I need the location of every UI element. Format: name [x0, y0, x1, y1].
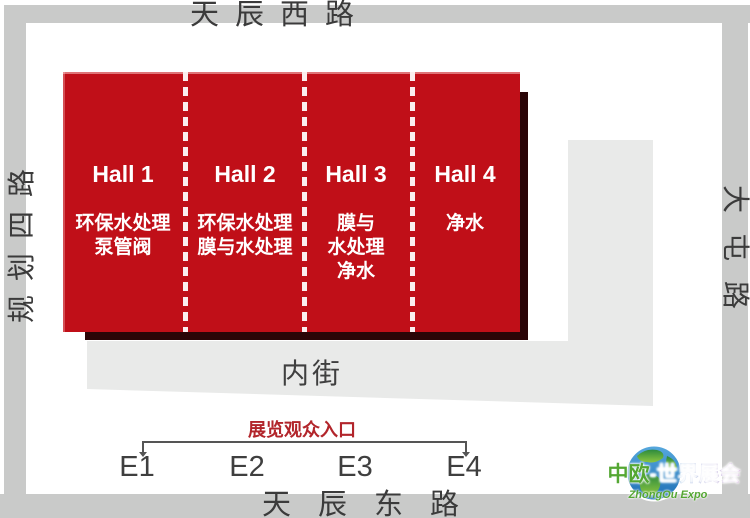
- hall-1-category-1: 环保水处理: [63, 212, 183, 236]
- gate-e3: E3: [337, 450, 372, 484]
- entrance-label: 展览观众入口: [240, 416, 364, 442]
- hall-3-category-2: 水处理: [302, 236, 410, 260]
- hall-3-name: Hall 3: [302, 160, 410, 188]
- expo-map: 天辰西路 天辰东路 规划四路 大屯路 内街 Hall 1 环保水处理 泵管阀 H…: [0, 0, 750, 518]
- logo-title: 中欧-世界展会: [600, 462, 748, 488]
- gate-e1: E1: [119, 450, 154, 484]
- hall-3-category-1: 膜与: [302, 212, 410, 236]
- hall-2-category-1: 环保水处理: [188, 212, 302, 236]
- hall-1-name: Hall 1: [63, 160, 183, 188]
- hall-2-category-2: 膜与水处理: [188, 236, 302, 260]
- hall-3: Hall 3 膜与 水处理 净水: [302, 160, 410, 284]
- hall-3-category-3: 净水: [302, 260, 410, 284]
- hall-1: Hall 1 环保水处理 泵管阀: [63, 160, 183, 260]
- logo-subtitle: ZhongOu Expo: [600, 489, 736, 501]
- inner-street-label: 内街: [250, 352, 374, 392]
- logo-title-secondary: -世界展会: [650, 463, 741, 486]
- road-band-top: [4, 5, 750, 23]
- road-label-east: 大屯路: [720, 185, 750, 315]
- hall-2: Hall 2 环保水处理 膜与水处理: [188, 160, 302, 260]
- hall-4: Hall 4 净水: [410, 160, 520, 236]
- hall-1-category-2: 泵管阀: [63, 236, 183, 260]
- hall-4-name: Hall 4: [410, 160, 520, 188]
- gate-e2: E2: [229, 450, 264, 484]
- road-label-west: 规划四路: [7, 163, 37, 323]
- gate-e4: E4: [446, 450, 481, 484]
- entrance-bracket-line: [142, 441, 467, 443]
- road-label-north: 天辰西路: [190, 0, 370, 30]
- hall-2-name: Hall 2: [188, 160, 302, 188]
- hall-4-category-1: 净水: [410, 212, 520, 236]
- expo-logo: 中欧-世界展会 ZhongOu Expo: [600, 443, 748, 515]
- road-label-south: 天辰东路: [262, 490, 486, 518]
- logo-title-primary: 中欧: [608, 463, 650, 486]
